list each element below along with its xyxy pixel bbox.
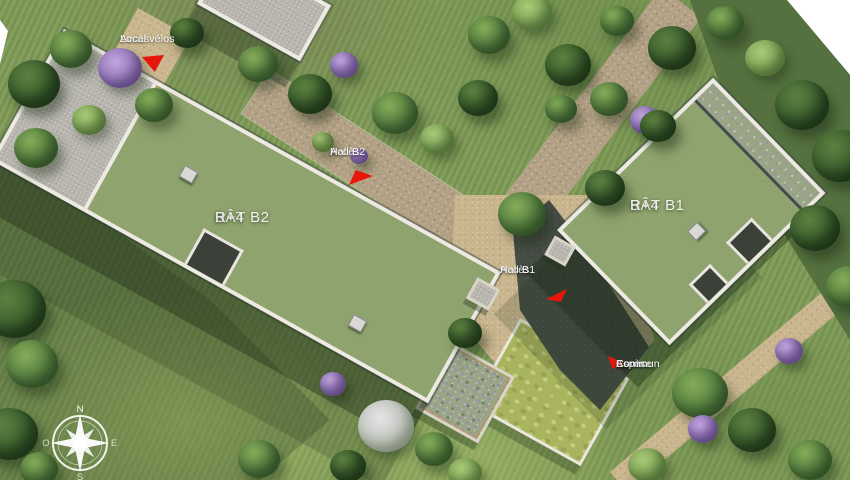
- tree: [420, 124, 454, 154]
- tree: [448, 318, 482, 348]
- tree: [545, 44, 591, 86]
- tree: [448, 458, 482, 480]
- tree: [648, 26, 696, 70]
- tree: [50, 30, 92, 68]
- compass-rose-icon: N E S O: [41, 403, 119, 480]
- tree: [8, 60, 60, 108]
- tree: [6, 340, 58, 388]
- flowering-tree: [688, 415, 718, 443]
- tree: [14, 128, 58, 168]
- compass-north-label: N: [77, 404, 84, 415]
- site-plan-render: Accès Local vélos Accès Hall B2 Accès Ha…: [0, 0, 850, 480]
- tree: [706, 6, 744, 40]
- tree: [628, 448, 666, 480]
- tree: [415, 432, 453, 466]
- access-label-line: Hall B2: [330, 146, 365, 159]
- flowering-tree: [320, 372, 346, 396]
- tree: [745, 40, 785, 76]
- tree: [238, 440, 280, 478]
- compass-east-label: E: [111, 438, 117, 449]
- tree: [775, 80, 829, 130]
- flowering-tree: [775, 338, 803, 364]
- flowering-tree: [358, 400, 414, 452]
- tree: [330, 450, 366, 480]
- access-label-line: Commun: [616, 358, 660, 371]
- building-floors: R+4: [630, 196, 659, 216]
- tree: [788, 440, 832, 480]
- tree: [790, 205, 840, 251]
- tree: [590, 82, 628, 116]
- tree: [372, 92, 418, 134]
- tree: [498, 192, 546, 236]
- flowering-tree: [98, 48, 142, 88]
- tree: [238, 46, 278, 82]
- compass-west-label: O: [42, 438, 49, 449]
- tree: [728, 408, 776, 452]
- tree: [468, 16, 510, 54]
- tree: [672, 368, 728, 418]
- tree: [288, 74, 332, 114]
- tree: [585, 170, 625, 206]
- access-label-line: Hall B1: [500, 264, 535, 277]
- access-label-line: Local vélos: [120, 33, 175, 46]
- tree: [170, 18, 204, 48]
- flowering-tree: [330, 52, 358, 78]
- building-floors: R+4: [215, 208, 244, 228]
- tree: [640, 110, 676, 142]
- compass-south-label: S: [77, 472, 83, 480]
- tree: [135, 88, 173, 122]
- tree: [600, 6, 634, 36]
- tree: [458, 80, 498, 116]
- tree: [72, 105, 106, 135]
- tree: [545, 95, 577, 123]
